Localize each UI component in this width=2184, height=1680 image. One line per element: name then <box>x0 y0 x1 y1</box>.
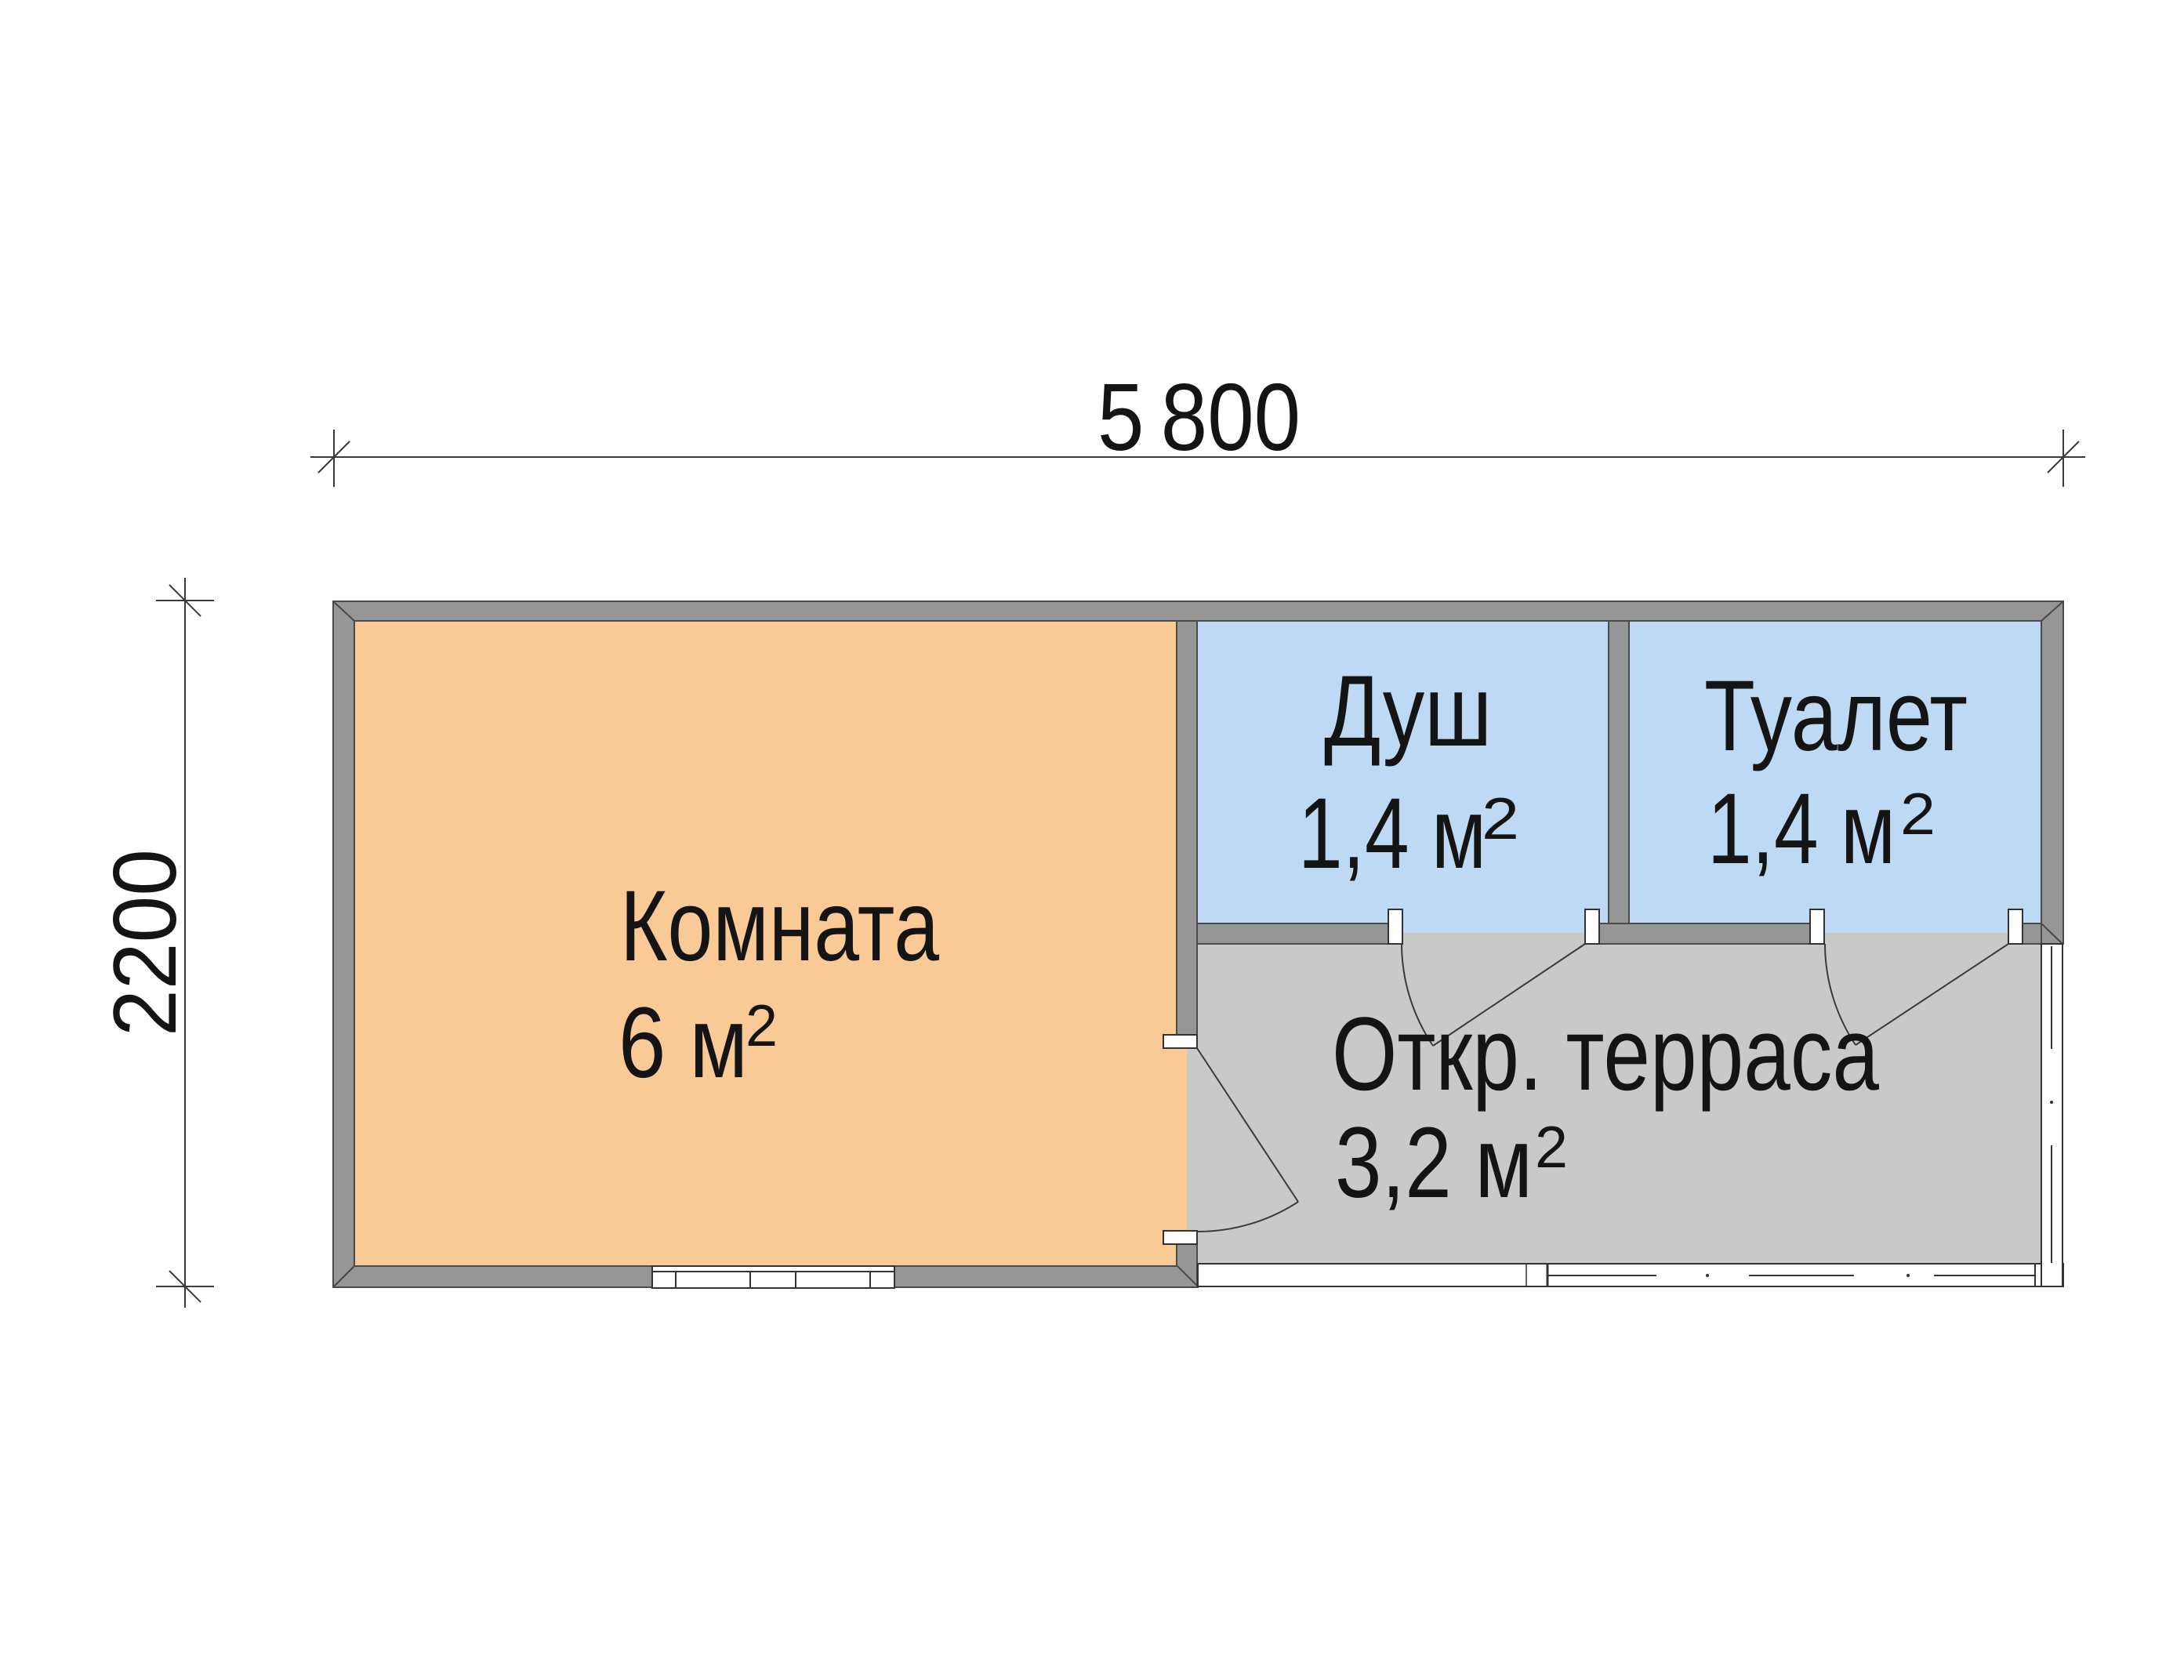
svg-text:Комната: Комната <box>620 870 940 982</box>
svg-text:6 м: 6 м <box>619 987 748 1099</box>
svg-text:2: 2 <box>1482 786 1519 851</box>
svg-text:Туалет: Туалет <box>1704 660 1968 772</box>
svg-text:3,2 м: 3,2 м <box>1335 1107 1533 1219</box>
svg-text:2: 2 <box>1900 781 1935 847</box>
svg-text:Душ: Душ <box>1324 655 1492 767</box>
svg-text:5 800: 5 800 <box>1097 364 1301 470</box>
svg-text:1,4 м: 1,4 м <box>1707 773 1896 885</box>
svg-text:2: 2 <box>1535 1114 1568 1180</box>
svg-text:1,4 м: 1,4 м <box>1298 778 1486 890</box>
svg-text:2200: 2200 <box>96 849 195 1036</box>
svg-text:Откр. терраса: Откр. терраса <box>1332 996 1879 1112</box>
svg-text:2: 2 <box>746 992 778 1058</box>
